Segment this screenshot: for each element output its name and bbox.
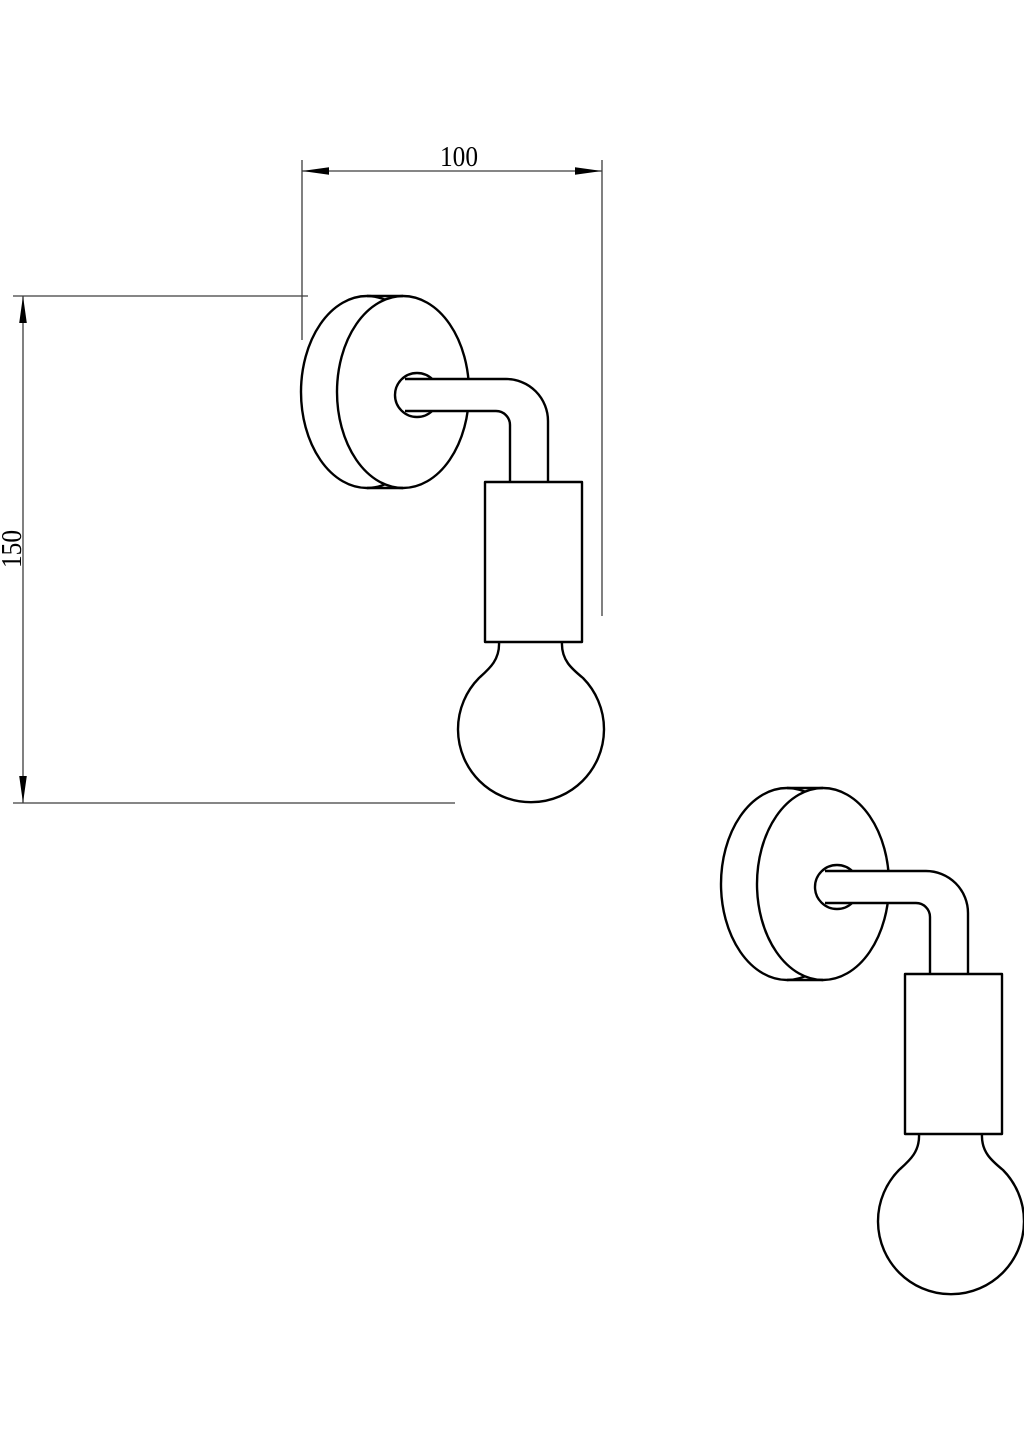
drawing-svg: 100 150 [0, 0, 1024, 1448]
height-arrow-top [19, 296, 27, 323]
wall-sconce-view-primary [301, 296, 604, 802]
wall-sconce-view-secondary [721, 788, 1024, 1294]
technical-drawing-canvas: 100 150 [0, 0, 1024, 1448]
height-dimension-label: 150 [0, 530, 28, 568]
width-dimension-label: 100 [440, 141, 478, 173]
height-arrow-bottom [19, 776, 27, 803]
width-arrow-right [575, 167, 602, 175]
width-arrow-left [302, 167, 329, 175]
